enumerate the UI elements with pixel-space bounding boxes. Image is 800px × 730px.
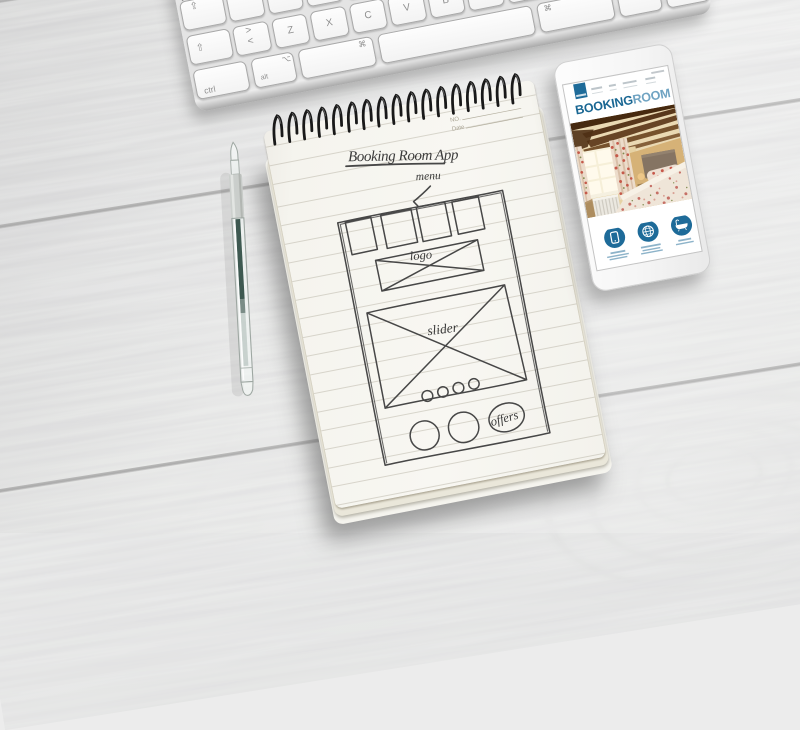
svg-text:Date: Date [451,124,465,132]
svg-text:offers: offers [489,408,520,429]
svg-text:slider: slider [426,320,459,339]
svg-text:menu: menu [415,170,441,183]
svg-text:logo: logo [409,247,432,263]
svg-text:NO.: NO. [450,116,462,124]
